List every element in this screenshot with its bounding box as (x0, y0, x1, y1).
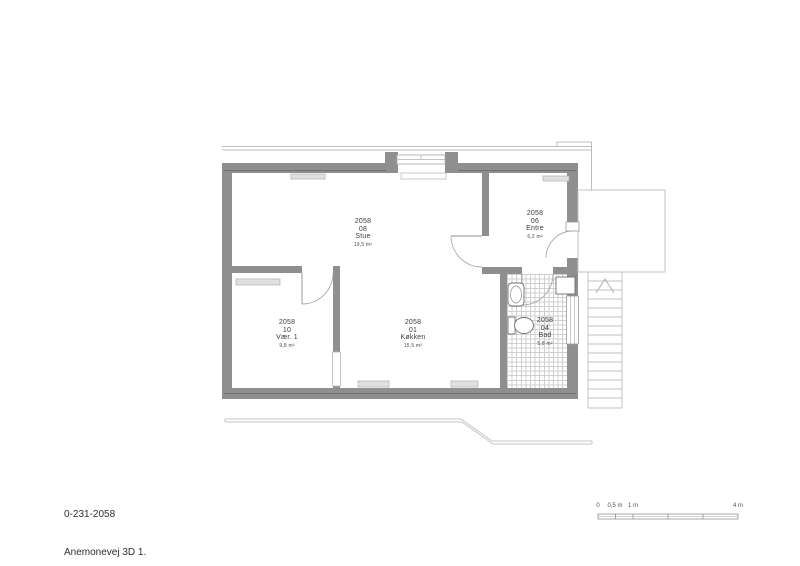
room-id: 2058 (500, 210, 570, 218)
room-id: 2058 (252, 319, 322, 327)
sill-entre-top (543, 176, 569, 181)
stairs (588, 272, 622, 408)
scale-label-1m: 1 m (622, 503, 644, 509)
sill-vaer1-top (236, 279, 280, 285)
room-area: 6,2 m² (500, 234, 570, 240)
room-name: Køkken (378, 334, 448, 342)
room-name: Stue (328, 233, 398, 241)
shower-unit (556, 277, 575, 294)
room-label-stue: 2058 08 Stue 19,5 m² (328, 218, 398, 248)
room-number: 08 (328, 226, 398, 234)
terrace-outline (578, 190, 665, 272)
room-name: Entre (500, 225, 570, 233)
room-area: 9,8 m² (252, 343, 322, 349)
room-label-bad: 2058 04 Bad 5,8 m² (510, 317, 580, 347)
scale-bar (598, 514, 738, 519)
room-label-koekken: 2058 01 Køkken 15,5 m² (378, 319, 448, 349)
room-name: Vær. 1 (252, 334, 322, 342)
eaves-outline (225, 419, 592, 444)
room-number: 04 (510, 325, 580, 333)
floor-plan-canvas: 2058 08 Stue 19,5 m² 2058 06 Entre 6,2 m… (0, 0, 800, 566)
scale-label-4m: 4 m (727, 503, 749, 509)
room-area: 5,8 m² (510, 341, 580, 347)
linework-layer (0, 0, 800, 566)
room-label-entre: 2058 06 Entre 6,2 m² (500, 210, 570, 240)
title-block: 0-231-2058 Anemonevej 3D 1. 7490 Aulum (64, 484, 146, 566)
sill-koekken-bottom-1 (358, 381, 389, 387)
window-sills (236, 174, 569, 387)
vaer1-wall-opening (333, 352, 341, 386)
sink-icon (508, 283, 524, 306)
sill-koekken-bottom-2 (451, 381, 478, 387)
room-label-vaer1: 2058 10 Vær. 1 9,8 m² (252, 319, 322, 349)
room-id: 2058 (328, 218, 398, 226)
entry-bay-window (397, 155, 446, 179)
case-number: 0-231-2058 (64, 509, 146, 522)
roof-outline (222, 142, 592, 190)
sill-stue-top (291, 174, 325, 179)
address-line: Anemonevej 3D 1. (64, 547, 146, 560)
room-number: 01 (378, 327, 448, 335)
door-stue-entre (451, 236, 482, 267)
room-number: 06 (500, 218, 570, 226)
room-area: 15,5 m² (378, 343, 448, 349)
room-id: 2058 (510, 317, 580, 325)
door-bad (522, 274, 553, 305)
room-number: 10 (252, 327, 322, 335)
room-name: Bad (510, 332, 580, 340)
room-id: 2058 (378, 319, 448, 327)
room-area: 19,5 m² (328, 242, 398, 248)
door-vaer1 (302, 273, 333, 304)
